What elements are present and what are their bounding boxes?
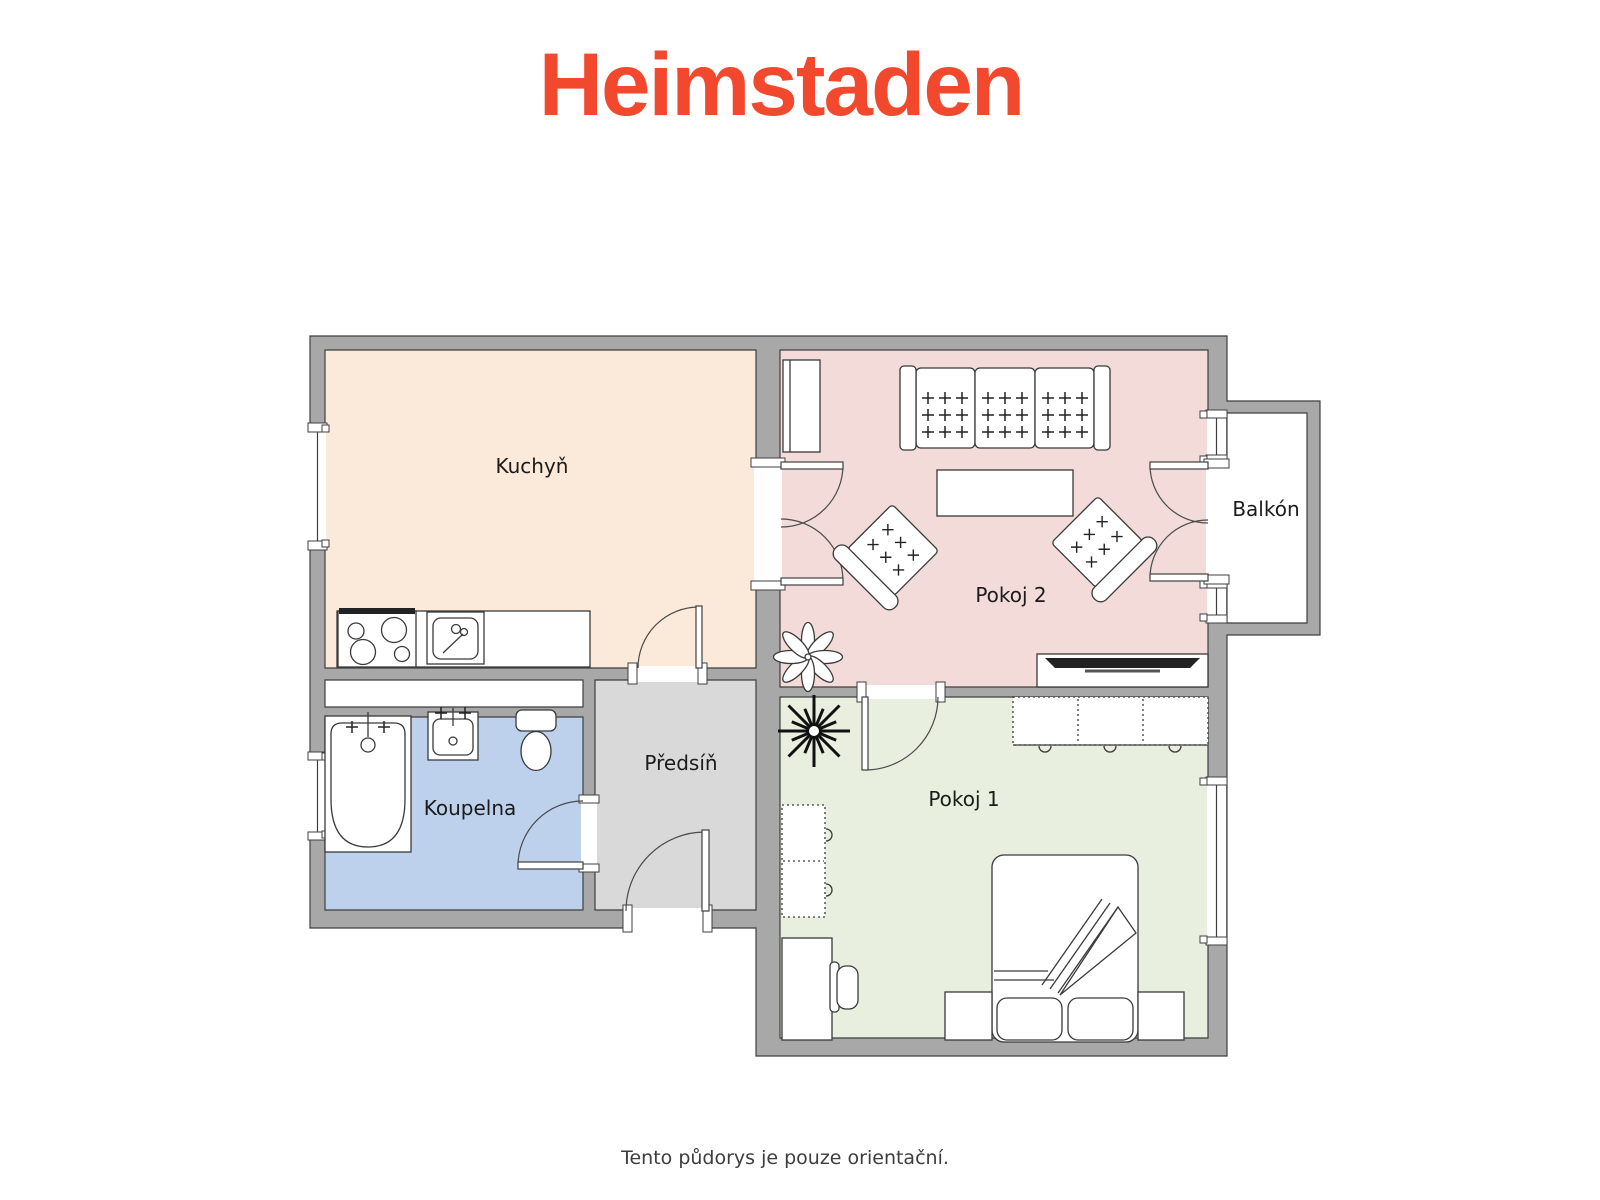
nightstand-right: [1138, 992, 1184, 1040]
bathroom-sink: [428, 707, 478, 760]
stove: [338, 608, 416, 667]
room-label-pokoj2: Pokoj 2: [975, 583, 1046, 607]
page: Heimstaden: [0, 0, 1600, 1200]
window-kitchen: [308, 423, 329, 550]
room-label-koupelna: Koupelna: [424, 796, 517, 820]
kitchen-sink: [427, 612, 484, 664]
wardrobe-pokoj2: [783, 360, 820, 452]
plant-pokoj1: [778, 695, 850, 767]
pillow-right: [1068, 998, 1133, 1040]
room-label-kuchyn: Kuchyň: [496, 454, 569, 478]
nightstand-left: [945, 992, 992, 1040]
room-label-pokoj1: Pokoj 1: [928, 787, 999, 811]
dresser-pokoj1: [782, 805, 832, 917]
desk: [782, 938, 832, 1040]
pillow-left: [997, 998, 1062, 1040]
sofa: [900, 366, 1110, 450]
coffee-table: [937, 470, 1073, 516]
wardrobe-pokoj1: [1013, 697, 1208, 752]
room-label-predsin: Předsíň: [644, 751, 717, 775]
room-label-balkon: Balkón: [1232, 497, 1299, 521]
floorplan-canvas: Kuchyň Pokoj 2 Balkón Předsíň Koupelna P…: [0, 0, 1600, 1200]
tv-cabinet: [1037, 654, 1208, 687]
desk-chair: [830, 962, 858, 1012]
disclaimer-text: Tento půdorys je pouze orientační.: [0, 1147, 1570, 1169]
bathtub: [325, 712, 411, 852]
room-predsin-floor: [595, 680, 756, 910]
plant-pokoj2: [774, 623, 843, 692]
